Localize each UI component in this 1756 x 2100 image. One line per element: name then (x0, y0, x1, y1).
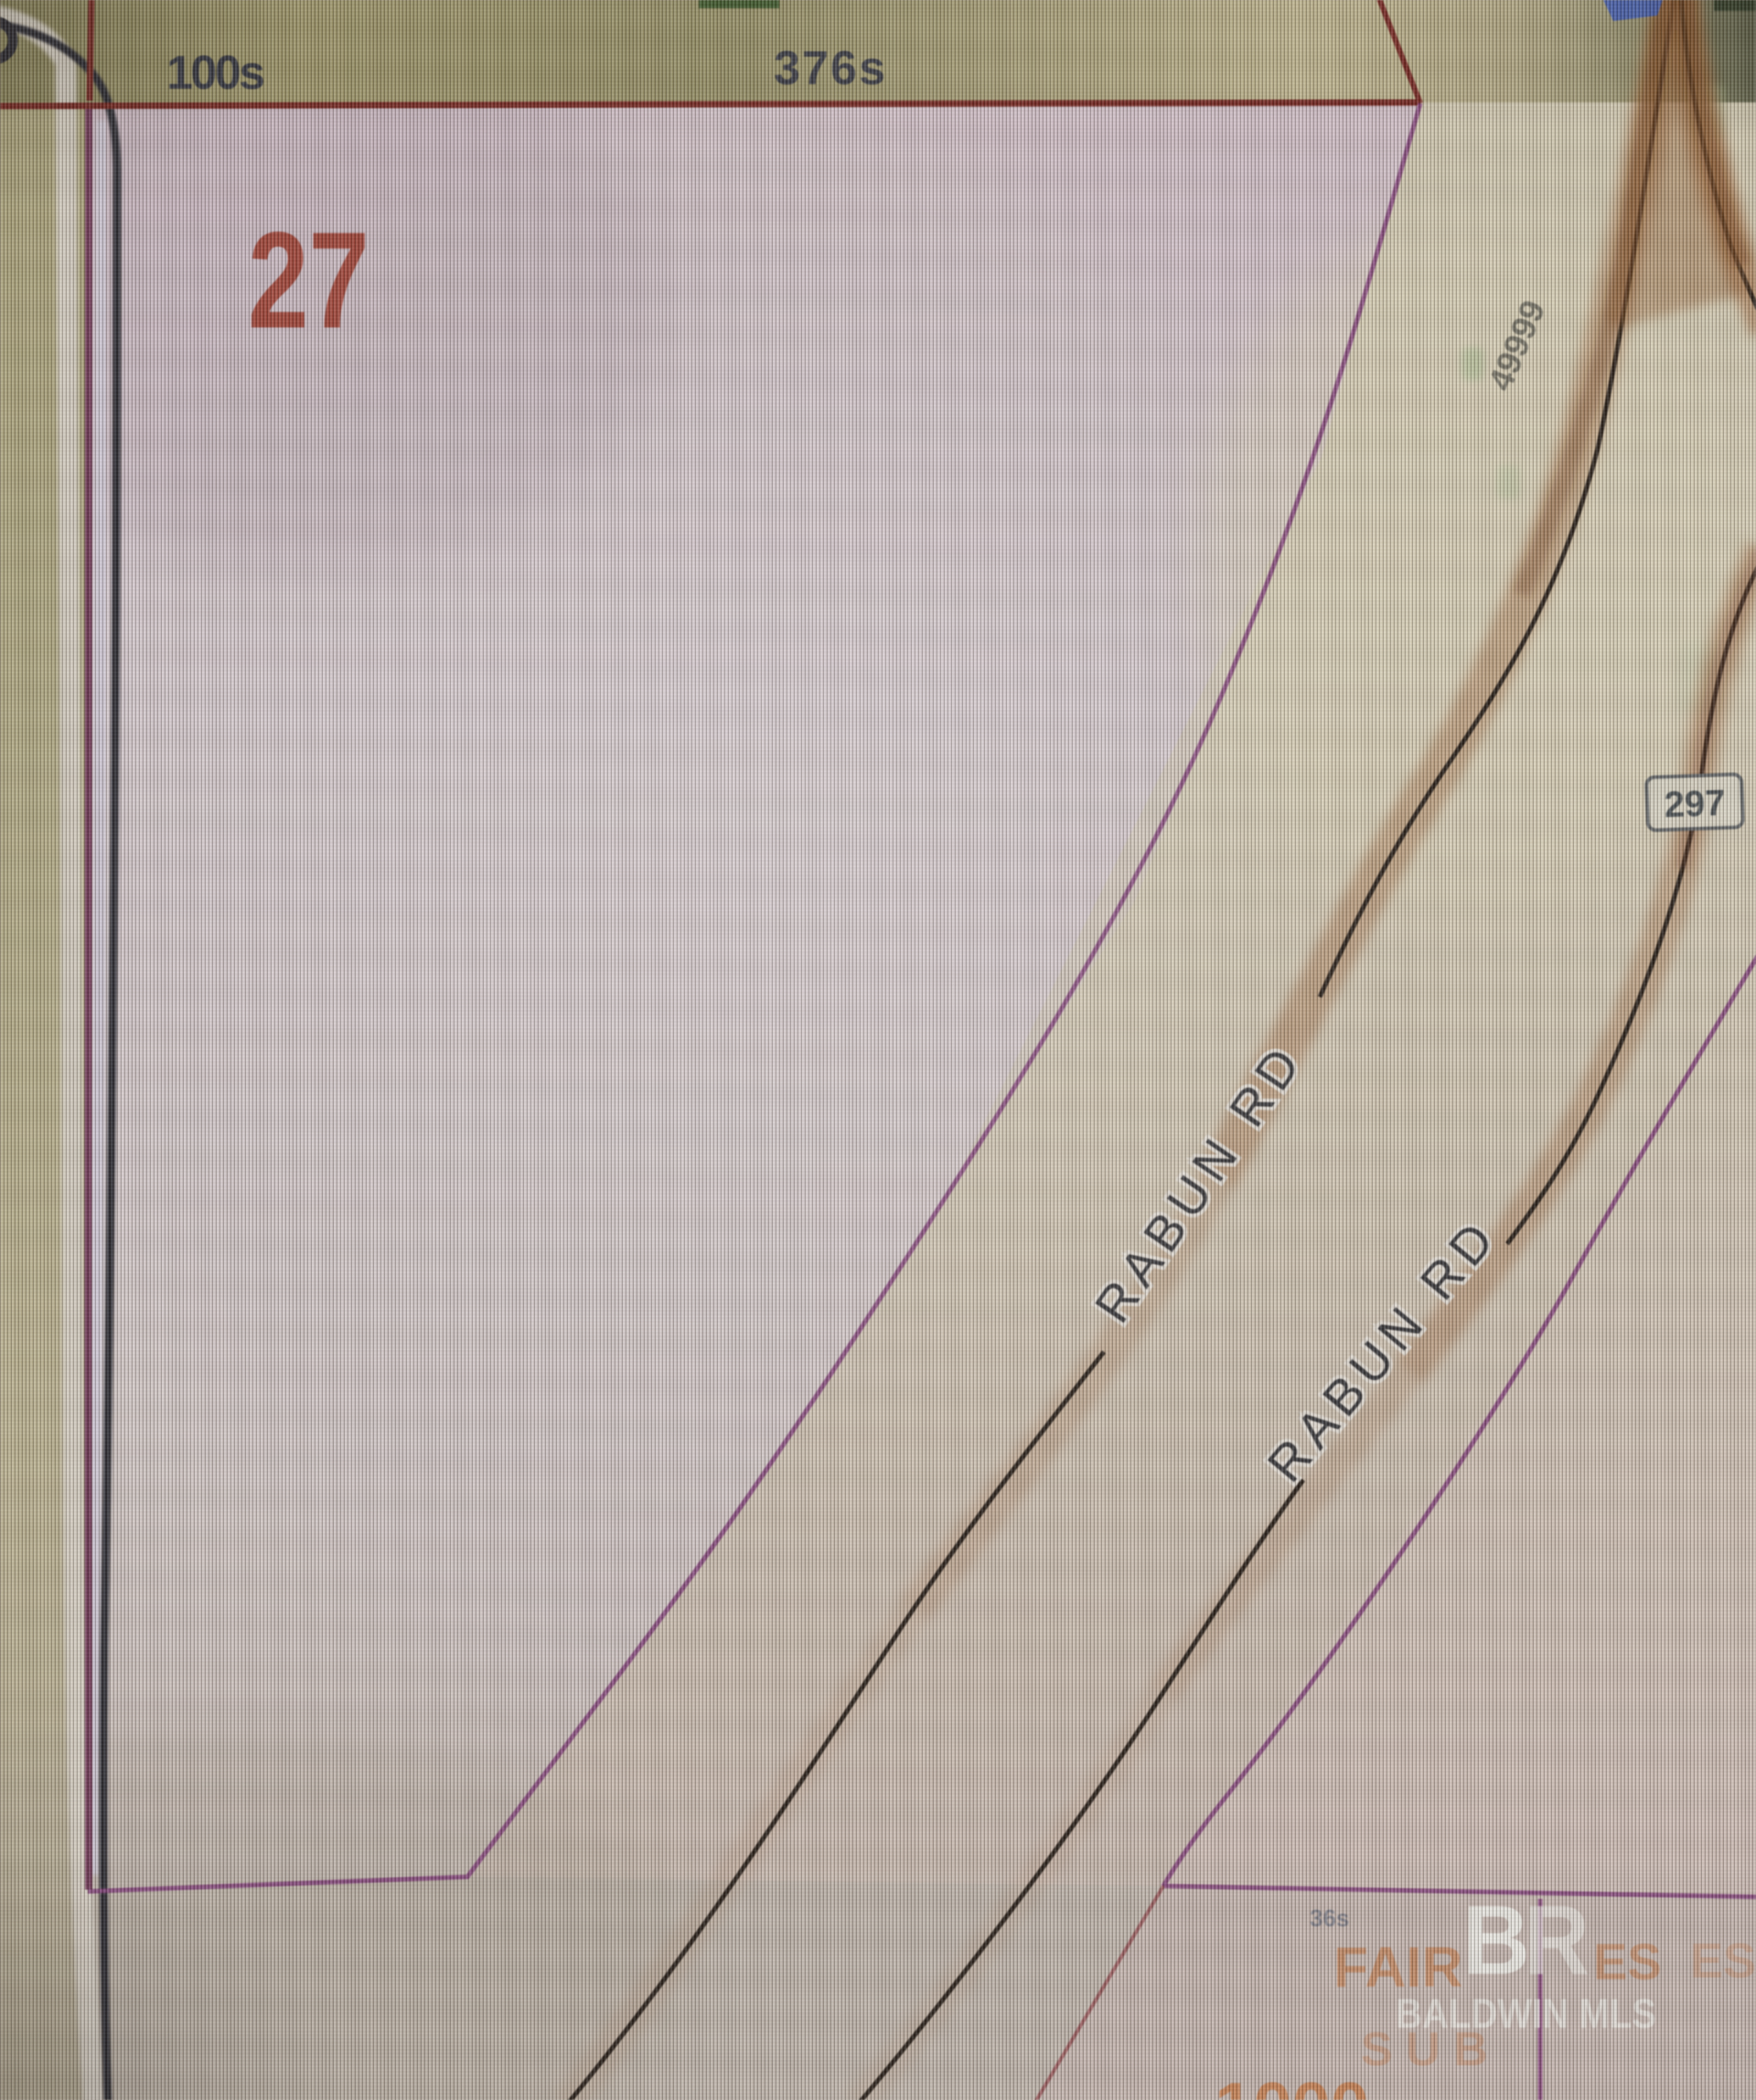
svg-text:ES: ES (1593, 1933, 1662, 1990)
svg-text:BALDWIN MLS: BALDWIN MLS (1396, 1990, 1656, 2037)
svg-text:297: 297 (1664, 783, 1726, 825)
svg-text:100s: 100s (166, 47, 265, 100)
svg-text:ES: ES (1690, 1934, 1756, 1988)
svg-text:36s: 36s (1310, 1904, 1349, 1932)
svg-text:R: R (1524, 1884, 1590, 1995)
svg-text:B: B (1462, 1884, 1530, 1995)
svg-text:27: 27 (248, 203, 369, 357)
svg-text:1000: 1000 (1215, 2069, 1369, 2100)
